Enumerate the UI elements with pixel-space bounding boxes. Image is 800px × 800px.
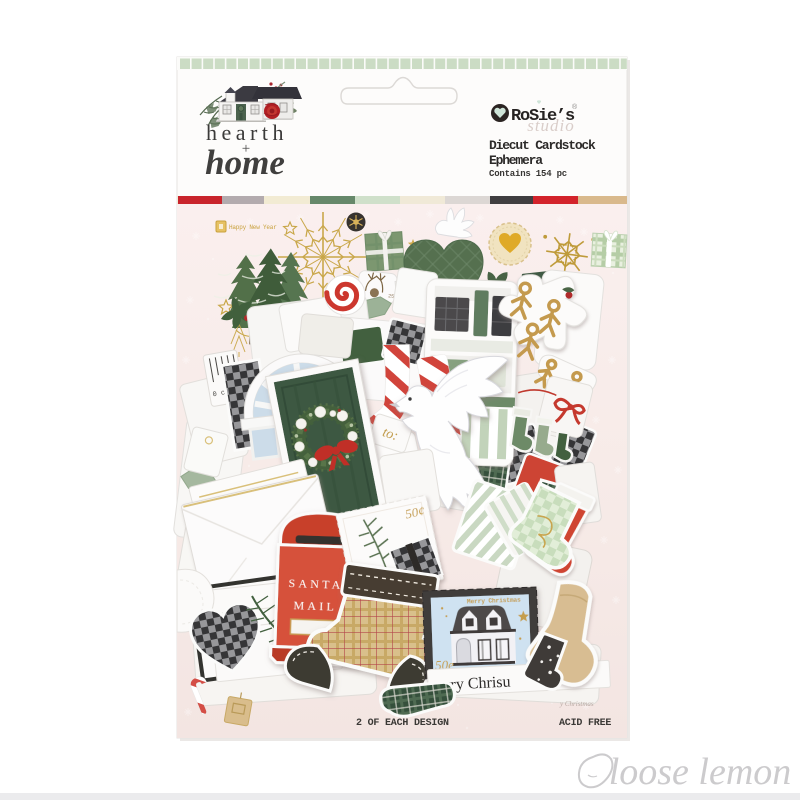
svg-text:studio: studio [527,116,575,135]
svg-text:MAIL: MAIL [293,598,337,614]
svg-text:2 OF EACH DESIGN: 2 OF EACH DESIGN [356,718,449,729]
svg-text:Contains 154 pc: Contains 154 pc [489,169,567,179]
svg-text:SANTA: SANTA [288,576,344,592]
svg-text:ACID FREE: ACID FREE [559,718,611,729]
svg-text:y Christmas: y Christmas [559,700,594,708]
svg-text:Ephemera: Ephemera [489,153,543,168]
svg-text:Happy New Year: Happy New Year [229,224,277,231]
svg-text:®: ® [572,103,578,111]
svg-text:home: home [205,143,285,182]
svg-text:loose lemon: loose lemon [609,751,792,793]
svg-text:Diecut Cardstock: Diecut Cardstock [489,138,596,153]
